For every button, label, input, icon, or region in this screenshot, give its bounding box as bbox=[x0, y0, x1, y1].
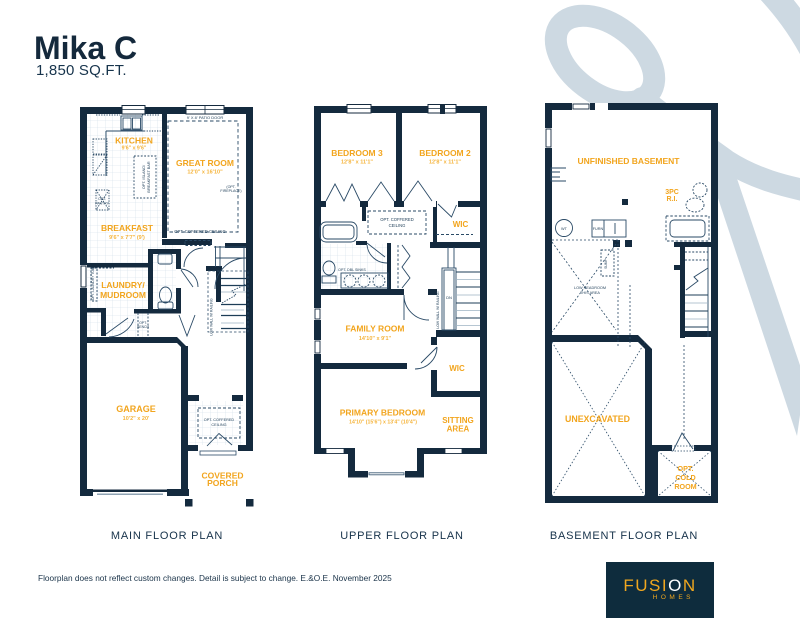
svg-text:R.I.: R.I. bbox=[667, 196, 678, 203]
svg-text:3PC: 3PC bbox=[665, 189, 679, 196]
svg-text:14'10" x 9'1": 14'10" x 9'1" bbox=[359, 336, 392, 342]
svg-text:THIS AREA: THIS AREA bbox=[580, 291, 600, 295]
svg-text:CEILING: CEILING bbox=[211, 423, 226, 427]
svg-text:LOW WALL W/ RAILING: LOW WALL W/ RAILING bbox=[210, 298, 214, 336]
svg-text:BEDROOM 3: BEDROOM 3 bbox=[331, 148, 383, 158]
svg-text:UNEXCAVATED: UNEXCAVATED bbox=[565, 414, 630, 424]
svg-text:BREAKFAST BAR: BREAKFAST BAR bbox=[147, 161, 151, 192]
svg-text:COLD: COLD bbox=[675, 473, 695, 482]
svg-text:GARAGE: GARAGE bbox=[116, 404, 156, 414]
svg-text:BEDROOM 2: BEDROOM 2 bbox=[419, 148, 471, 158]
svg-text:PORCH: PORCH bbox=[207, 478, 238, 488]
svg-text:10'2" x 20': 10'2" x 20' bbox=[123, 416, 150, 422]
svg-text:OPT. COFFERED: OPT. COFFERED bbox=[204, 418, 235, 422]
svg-text:LOW HEADROOM: LOW HEADROOM bbox=[574, 286, 606, 290]
svg-text:OPT. COFFERED: OPT. COFFERED bbox=[380, 217, 414, 222]
svg-text:ROOM: ROOM bbox=[674, 482, 696, 491]
svg-text:PANTRY: PANTRY bbox=[95, 202, 110, 206]
svg-text:CEILING: CEILING bbox=[389, 223, 406, 228]
svg-text:WIC: WIC bbox=[449, 364, 465, 373]
svg-text:FAMILY ROOM: FAMILY ROOM bbox=[345, 324, 404, 334]
svg-text:MUDROOM: MUDROOM bbox=[100, 290, 146, 300]
svg-text:14'10" (15'6") x 13'4" (10'4"): 14'10" (15'6") x 13'4" (10'4") bbox=[349, 420, 417, 426]
svg-text:12'8" x 11'1": 12'8" x 11'1" bbox=[429, 160, 461, 166]
svg-text:AREA: AREA bbox=[447, 425, 470, 434]
svg-text:PRIMARY BEDROOM: PRIMARY BEDROOM bbox=[340, 408, 425, 418]
svg-text:KITCHEN: KITCHEN bbox=[115, 136, 153, 146]
svg-text:OPT.: OPT. bbox=[98, 197, 106, 201]
svg-text:9'6" x 9'6": 9'6" x 9'6" bbox=[122, 146, 147, 152]
svg-text:WT: WT bbox=[561, 227, 568, 231]
svg-text:12'0" x 16'10": 12'0" x 16'10" bbox=[187, 170, 223, 176]
svg-text:OPT. DBL SINKS: OPT. DBL SINKS bbox=[338, 268, 366, 272]
svg-text:9'6" x 7'7" (9'): 9'6" x 7'7" (9') bbox=[109, 235, 145, 241]
svg-text:WIC: WIC bbox=[453, 220, 469, 229]
svg-text:SUMP: SUMP bbox=[604, 258, 608, 269]
svg-text:LOW WALL W/ RAILING: LOW WALL W/ RAILING bbox=[436, 291, 440, 329]
svg-text:UNFINISHED BASEMENT: UNFINISHED BASEMENT bbox=[577, 156, 680, 166]
svg-text:12'8" x 11'1": 12'8" x 11'1" bbox=[341, 160, 373, 166]
svg-text:BREAKFAST: BREAKFAST bbox=[101, 223, 154, 233]
svg-text:OPT. COFFERED CEILING: OPT. COFFERED CEILING bbox=[174, 229, 225, 234]
svg-text:FIREPLACE): FIREPLACE) bbox=[220, 189, 241, 193]
svg-text:OPT.: OPT. bbox=[678, 464, 694, 473]
svg-text:9' X 8' PATIO DOOR: 9' X 8' PATIO DOOR bbox=[187, 115, 224, 120]
svg-text:DN: DN bbox=[446, 295, 452, 300]
svg-text:GREAT ROOM: GREAT ROOM bbox=[176, 158, 234, 168]
svg-text:OPT. LAUNDRY TUB: OPT. LAUNDRY TUB bbox=[91, 267, 95, 300]
svg-text:BENCH: BENCH bbox=[137, 325, 149, 329]
svg-text:LAUNDRY/: LAUNDRY/ bbox=[101, 280, 145, 290]
svg-text:FURN: FURN bbox=[593, 227, 604, 231]
svg-text:OPT. ISLAND/: OPT. ISLAND/ bbox=[142, 164, 146, 189]
